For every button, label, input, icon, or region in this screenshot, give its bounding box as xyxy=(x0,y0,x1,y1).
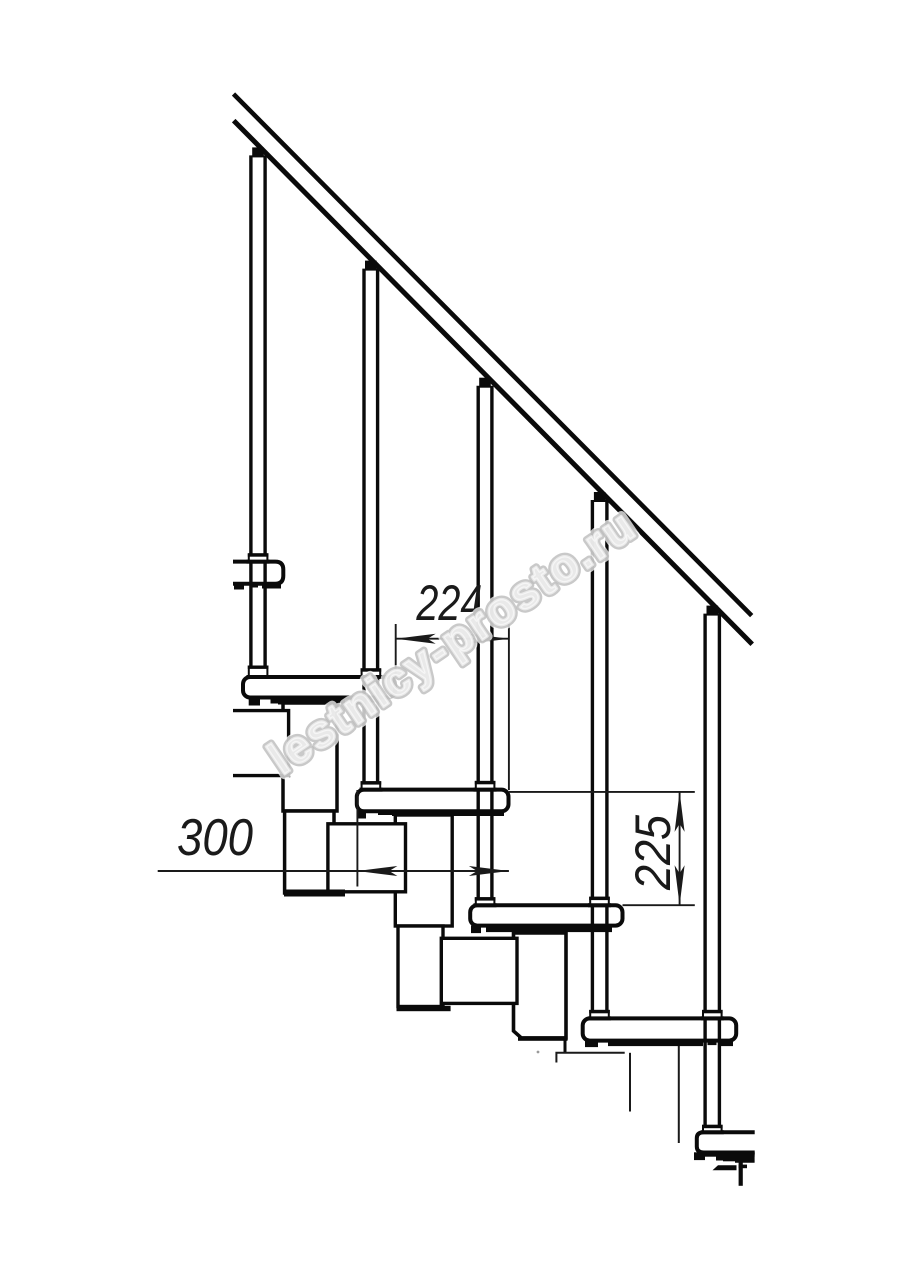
svg-text:300: 300 xyxy=(177,809,253,867)
svg-text:225: 225 xyxy=(625,815,681,891)
